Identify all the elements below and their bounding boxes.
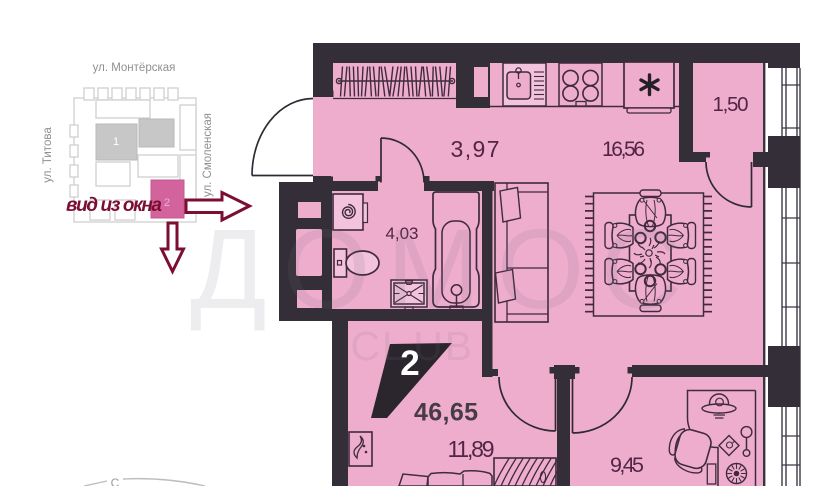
svg-text:L: L	[382, 323, 405, 369]
svg-text:B: B	[445, 323, 472, 369]
svg-text:ул. Смоленская: ул. Смоленская	[202, 113, 214, 197]
svg-text:ул. Монтёрская: ул. Монтёрская	[93, 62, 176, 74]
svg-text:С: С	[111, 476, 120, 486]
svg-text:16,56: 16,56	[602, 138, 645, 161]
svg-text:3,97: 3,97	[451, 136, 500, 162]
svg-text:ул. Титова: ул. Титова	[42, 127, 54, 183]
svg-text:1: 1	[113, 136, 119, 148]
svg-text:11,89: 11,89	[448, 436, 495, 462]
svg-text:2: 2	[164, 197, 170, 209]
svg-text:C: C	[351, 323, 381, 369]
svg-text:46,65: 46,65	[414, 399, 478, 427]
svg-text:вид из окна: вид из окна	[66, 195, 162, 216]
svg-text:U: U	[413, 323, 443, 369]
svg-text:9,45: 9,45	[610, 453, 644, 477]
svg-text:ДОМОС: ДОМОС	[190, 206, 698, 332]
svg-text:1,50: 1,50	[713, 93, 749, 116]
